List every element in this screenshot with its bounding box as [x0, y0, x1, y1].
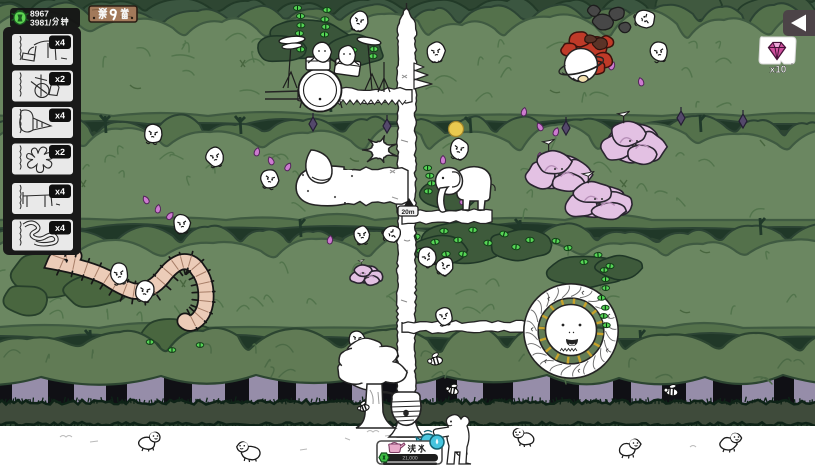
svg-text:x2: x2: [55, 147, 65, 157]
svg-text:x4: x4: [55, 223, 65, 233]
svg-text:3981/: 3981/: [30, 18, 52, 28]
svg-text:21,000: 21,000: [402, 456, 418, 462]
svg-text:x4: x4: [55, 187, 65, 197]
svg-text:x4: x4: [55, 111, 65, 121]
svg-text:x2: x2: [55, 74, 65, 84]
svg-text:x4: x4: [55, 38, 65, 48]
svg-text:20m: 20m: [401, 209, 414, 216]
svg-text:x10: x10: [770, 65, 787, 76]
